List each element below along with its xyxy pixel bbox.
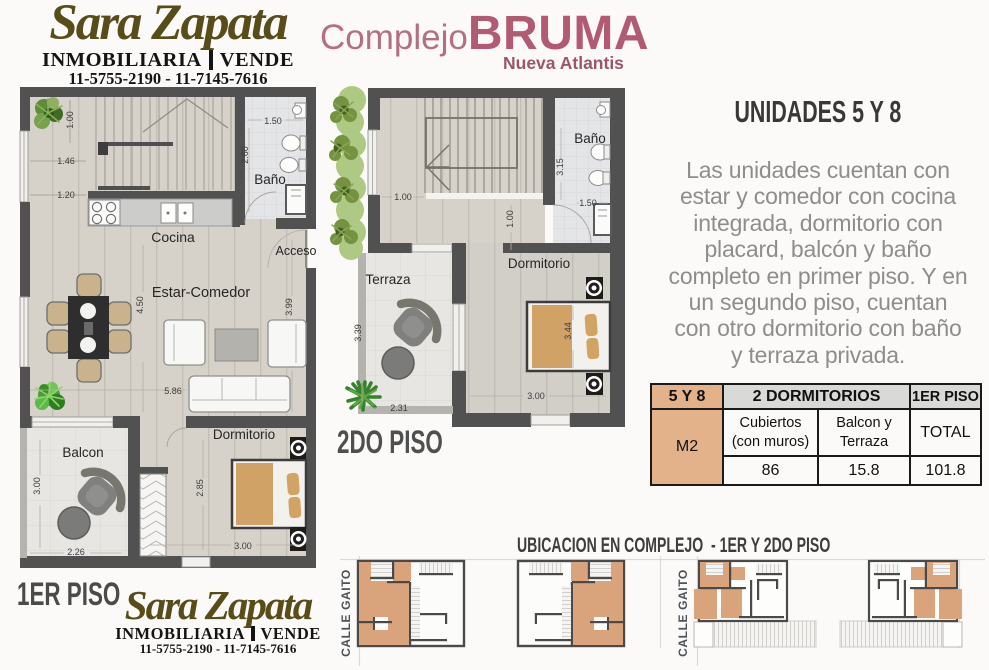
svg-text:Estar-Comedor: Estar-Comedor	[152, 285, 250, 301]
svg-text:2.31: 2.31	[390, 403, 408, 413]
svg-text:1.50: 1.50	[264, 116, 282, 126]
svg-text:1.50: 1.50	[579, 198, 597, 208]
svg-text:1.20: 1.20	[57, 190, 75, 200]
svg-text:Terraza: Terraza	[365, 272, 411, 287]
svg-text:Acceso: Acceso	[276, 244, 317, 258]
svg-text:3.15: 3.15	[555, 158, 565, 176]
svg-text:2.85: 2.85	[195, 479, 205, 497]
svg-text:3.39: 3.39	[353, 324, 363, 342]
svg-text:Baño: Baño	[574, 131, 606, 146]
svg-text:3.99: 3.99	[284, 298, 294, 316]
svg-text:2.26: 2.26	[67, 547, 85, 557]
svg-text:Cocina: Cocina	[151, 229, 195, 245]
svg-text:3.00: 3.00	[234, 541, 252, 551]
svg-text:3.44: 3.44	[563, 322, 573, 340]
svg-text:1.00: 1.00	[65, 111, 75, 129]
svg-text:1.46: 1.46	[57, 156, 75, 166]
svg-text:1.00: 1.00	[505, 210, 515, 228]
svg-text:CALLE GAITO: CALLE GAITO	[676, 569, 690, 657]
svg-text:3.00: 3.00	[32, 477, 42, 495]
svg-text:Baño: Baño	[254, 172, 286, 187]
svg-text:Dormitorio: Dormitorio	[213, 427, 275, 442]
svg-text:3.00: 3.00	[527, 391, 545, 401]
svg-text:4.50: 4.50	[135, 296, 145, 314]
svg-text:Balcon: Balcon	[62, 445, 103, 460]
svg-text:1.00: 1.00	[394, 192, 412, 202]
svg-text:CALLE GAITO: CALLE GAITO	[339, 569, 353, 657]
svg-text:5.86: 5.86	[164, 386, 182, 396]
svg-text:Dormitorio: Dormitorio	[508, 256, 570, 271]
svg-text:2.60: 2.60	[240, 146, 250, 164]
